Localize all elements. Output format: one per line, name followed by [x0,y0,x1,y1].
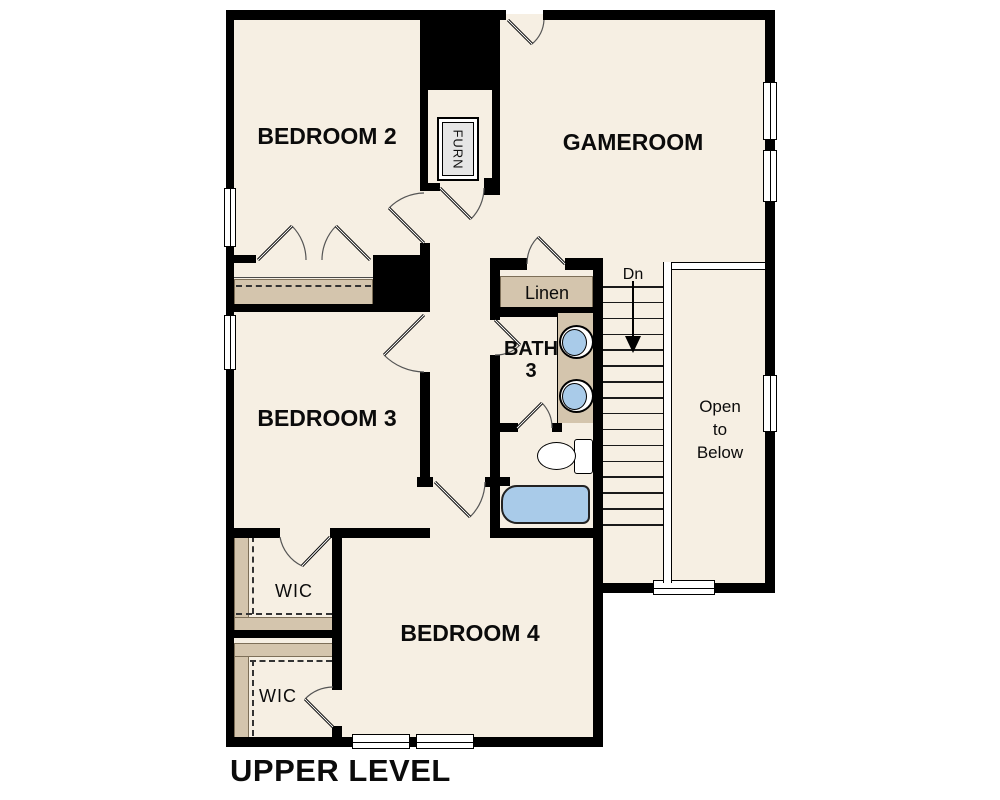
bedroom3-label: BEDROOM 3 [257,406,396,432]
window [224,188,236,247]
down-arrow-icon [625,336,641,353]
stair-tread [603,524,663,526]
window [763,150,777,202]
wic-bottom-label: WIC [259,686,297,706]
closet-shelf-edge [234,277,373,278]
bath3-label: BATH 3 [504,338,558,383]
door-furnace [440,188,484,222]
wic-bottom-shelf-left [234,643,249,738]
stair-tread [603,508,663,510]
bedroom4-label: BEDROOM 4 [400,621,539,647]
wall [332,726,342,737]
toilet-icon [537,442,576,470]
window [763,82,777,140]
wall [332,638,342,690]
wall [490,258,527,270]
wall [492,90,500,178]
stair-tread [603,492,663,494]
bedroom2-closet-rod [236,285,371,287]
wall [420,372,430,477]
wall [593,528,603,747]
toilet-tank [574,439,593,474]
wall [330,528,430,538]
door-bedroom2-closet-double [256,220,372,260]
wall [226,255,256,263]
gameroom-label: GAMEROOM [563,130,704,156]
wall [226,528,280,538]
wall [490,355,500,460]
stair-railing-side [663,262,672,583]
stair-tread [603,413,663,415]
window [763,375,777,432]
window [224,315,236,370]
door-bedroom3 [384,315,424,372]
wic-bottom-rod-top [250,660,332,662]
wall [490,477,510,486]
wall [373,255,430,312]
wic-top-label: WIC [275,581,313,601]
wall [420,90,428,190]
linen-label: Linen [525,283,569,303]
stair-tread [603,476,663,478]
bedroom2-closet-shelf [234,279,373,305]
bathtub-icon [501,485,590,524]
door-linen [527,226,565,264]
wall [552,423,562,432]
sink-basin [562,383,587,410]
wall [490,528,603,538]
wall [417,477,433,487]
wic-bottom-shelf-top [234,643,333,657]
wall [420,243,430,255]
sink-basin [562,329,587,356]
stair-tread [603,397,663,399]
stairs-dn-label: Dn [623,266,643,284]
wall [490,460,500,528]
stair-tread [603,429,663,431]
wall [543,10,775,20]
stair-down-line [632,281,634,337]
wall [226,630,342,638]
wall [332,528,342,638]
door-bedroom2 [374,193,424,243]
furnace-unit: FURN [437,117,479,181]
plan-title: UPPER LEVEL [230,754,451,789]
door-toilet-compartment [517,403,552,428]
furnace-label: FURN [451,129,466,169]
open-to-below-label: Open to Below [697,396,743,465]
window [352,734,410,749]
stair-tread [603,381,663,383]
wall [226,304,373,312]
door-bedroom4 [435,482,485,518]
wic-top-rod-left [252,536,254,614]
wall [484,178,500,195]
wic-top-rod-bottom [236,613,332,615]
door-gameroom-top [508,20,544,46]
stair-tread [603,365,663,367]
wic-bottom-rod-left [252,660,254,736]
wall [500,423,518,432]
wic-top-shelf-bottom [234,617,333,631]
door-wic-bottom [303,687,333,727]
door-wic-top [280,537,330,569]
stair-railing-top [663,262,765,270]
floor-plan: FURN [0,0,1000,800]
stair-tread [603,445,663,447]
wall [226,737,603,747]
wall [420,183,440,191]
bedroom2-label: BEDROOM 2 [257,124,396,150]
stair-tread [603,461,663,463]
window [416,734,474,749]
wall [593,258,603,528]
wall [420,10,500,90]
